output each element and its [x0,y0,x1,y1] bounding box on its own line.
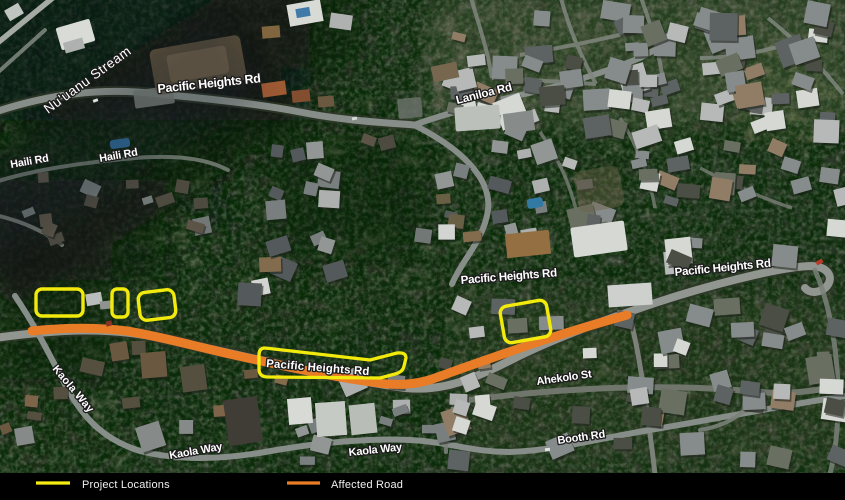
svg-text:Affected Road: Affected Road [331,479,403,491]
svg-text:Project Locations: Project Locations [82,479,170,491]
